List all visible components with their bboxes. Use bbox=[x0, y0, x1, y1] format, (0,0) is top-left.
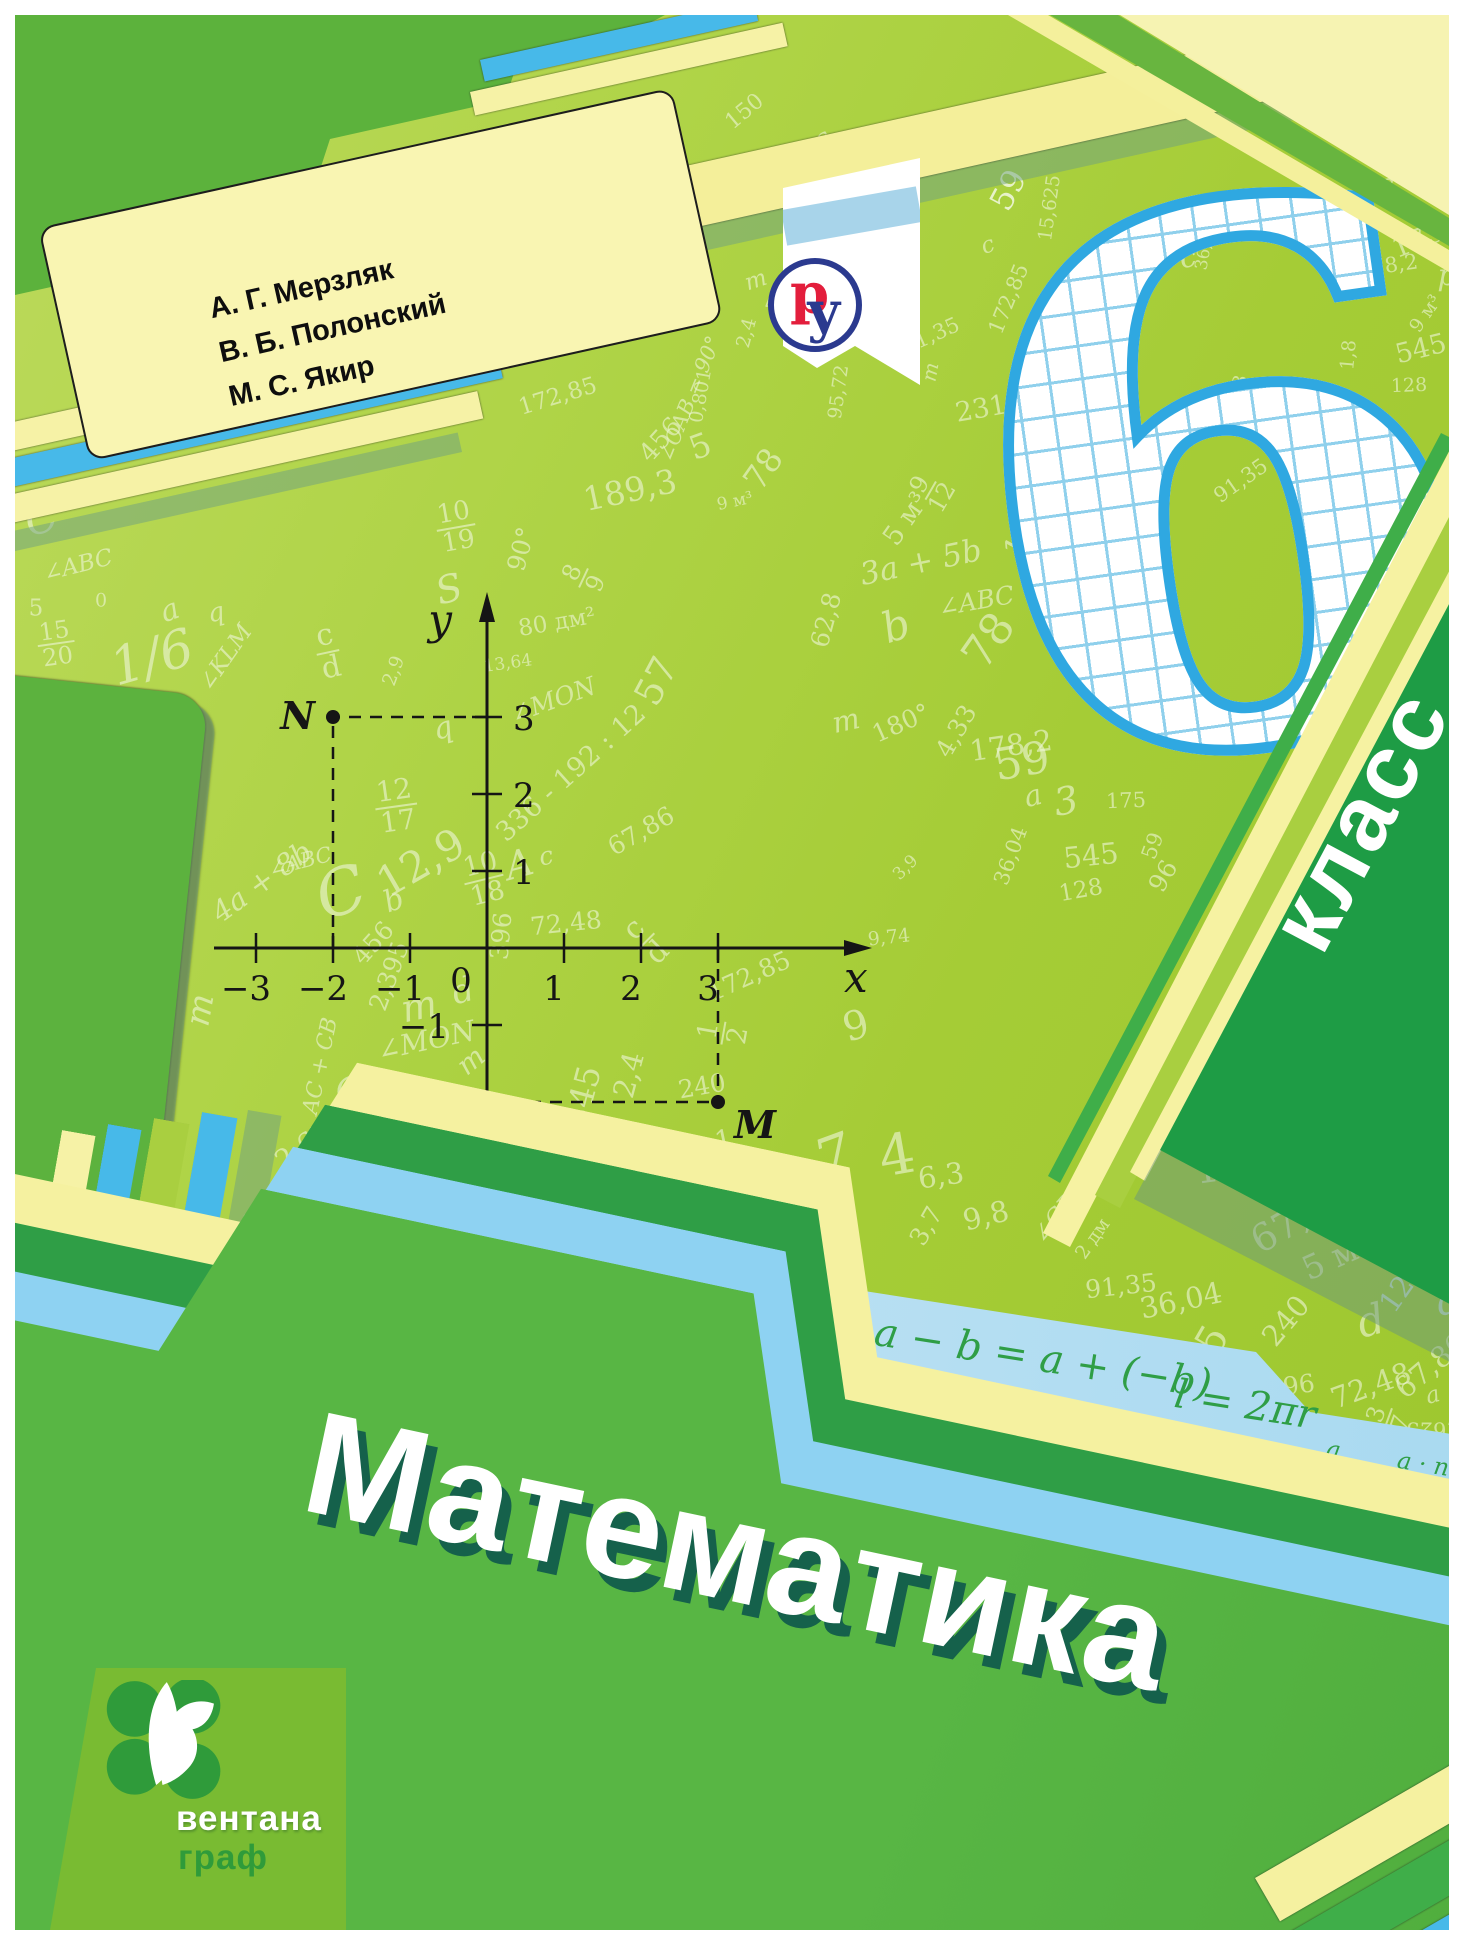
book-cover: 1503961005455915,625ac36,044,33S175178,2… bbox=[0, 0, 1464, 1945]
frame-bottom bbox=[0, 1930, 1464, 1945]
publisher-logo-icon bbox=[100, 1680, 240, 1800]
frame-left bbox=[0, 0, 15, 1945]
publisher-name-bottom: граф bbox=[178, 1838, 268, 1878]
frame-top bbox=[0, 0, 1464, 15]
frame-right bbox=[1449, 0, 1464, 1945]
publisher-name-top: вентана bbox=[176, 1799, 322, 1839]
